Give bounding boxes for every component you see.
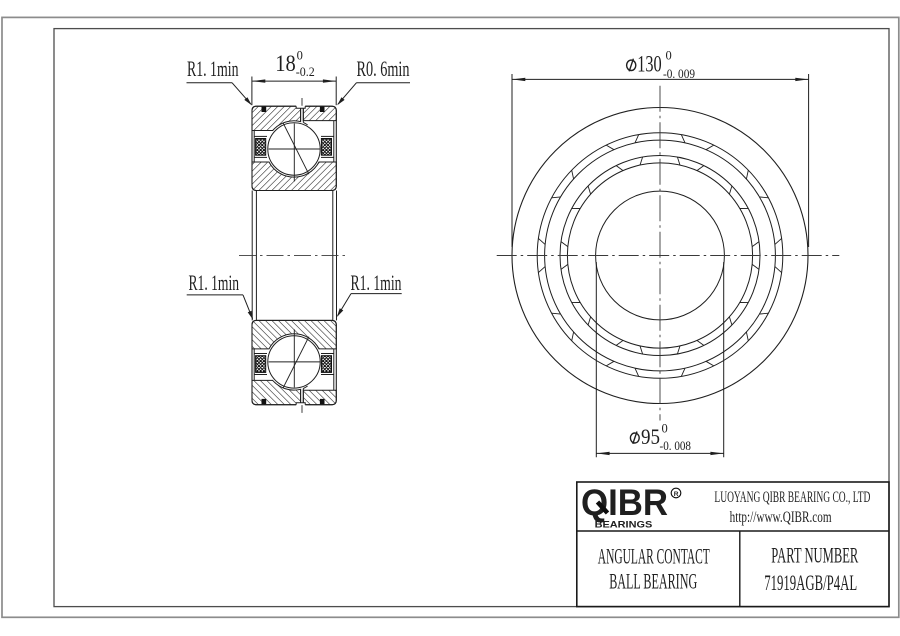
- svg-text:R1. 1min: R1. 1min: [351, 270, 402, 295]
- svg-text:R1. 1min: R1. 1min: [189, 270, 240, 295]
- svg-text:0: 0: [662, 421, 668, 435]
- svg-text:95: 95: [641, 424, 660, 449]
- svg-text:18: 18: [275, 51, 296, 76]
- svg-text:R: R: [674, 491, 679, 498]
- svg-text:BALL BEARING: BALL BEARING: [609, 568, 697, 593]
- svg-text:BEARINGS: BEARINGS: [595, 520, 653, 531]
- svg-text:0: 0: [297, 49, 303, 63]
- svg-text:71919AGB/P4AL: 71919AGB/P4AL: [764, 570, 857, 595]
- svg-text:LUOYANG QIBR BEARING CO., LTD: LUOYANG QIBR BEARING CO., LTD: [714, 489, 870, 506]
- svg-text:ANGULAR CONTACT: ANGULAR CONTACT: [598, 543, 710, 568]
- svg-text:PART NUMBER: PART NUMBER: [771, 543, 858, 568]
- svg-text:-0.2: -0.2: [296, 65, 315, 79]
- svg-text:130: 130: [637, 51, 662, 76]
- svg-text:-0. 008: -0. 008: [660, 439, 692, 453]
- svg-text:R0. 6min: R0. 6min: [357, 56, 410, 81]
- svg-text:0: 0: [666, 49, 672, 63]
- svg-text:-0. 009: -0. 009: [663, 67, 695, 81]
- svg-text:R1. 1min: R1. 1min: [187, 56, 239, 81]
- svg-text:QIBR: QIBR: [581, 481, 668, 523]
- svg-text:http://www.QIBR.com: http://www.QIBR.com: [730, 509, 832, 526]
